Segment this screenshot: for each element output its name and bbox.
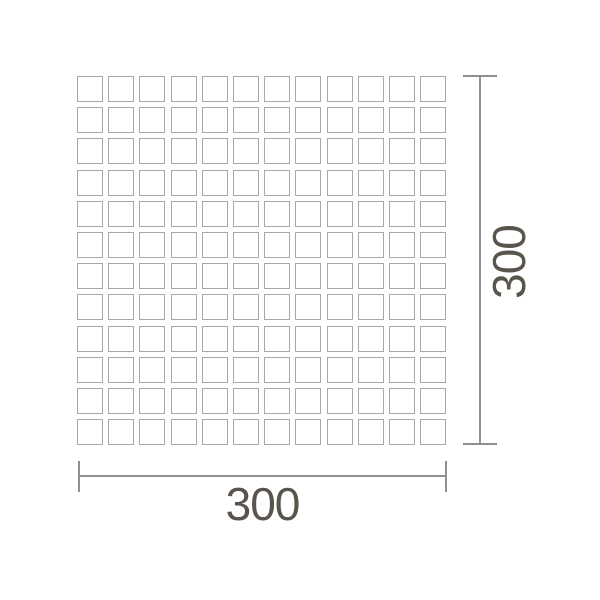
tile: [139, 294, 165, 320]
tile: [264, 294, 290, 320]
tile: [389, 263, 415, 289]
tile: [202, 201, 228, 227]
tile: [358, 201, 384, 227]
tile: [171, 232, 197, 258]
tile: [202, 263, 228, 289]
tile: [327, 294, 353, 320]
tile: [233, 201, 259, 227]
tile: [77, 232, 103, 258]
tile-grid: [77, 76, 446, 445]
tile: [295, 388, 321, 414]
tile: [233, 263, 259, 289]
tile: [77, 107, 103, 133]
tile: [108, 138, 134, 164]
tile: [77, 138, 103, 164]
tile: [358, 107, 384, 133]
tile: [295, 232, 321, 258]
tile: [108, 232, 134, 258]
tile: [77, 326, 103, 352]
tile: [233, 388, 259, 414]
tile: [327, 170, 353, 196]
tile: [389, 201, 415, 227]
tile: [264, 419, 290, 445]
tile: [171, 201, 197, 227]
tile: [420, 388, 446, 414]
height-dimension-tick-top: [463, 75, 497, 76]
tile: [327, 388, 353, 414]
tile: [77, 263, 103, 289]
tile: [108, 294, 134, 320]
tile: [77, 419, 103, 445]
tile: [108, 107, 134, 133]
tile: [139, 201, 165, 227]
tile: [233, 107, 259, 133]
tile: [233, 138, 259, 164]
tile: [202, 388, 228, 414]
tile: [327, 201, 353, 227]
tile: [171, 170, 197, 196]
tile: [202, 232, 228, 258]
tile: [295, 76, 321, 102]
tile: [108, 201, 134, 227]
tile: [358, 357, 384, 383]
tile: [202, 294, 228, 320]
tile: [139, 232, 165, 258]
tile: [202, 138, 228, 164]
tile: [420, 76, 446, 102]
tile: [389, 357, 415, 383]
tile: [389, 138, 415, 164]
tile: [358, 419, 384, 445]
tile-dimension-diagram: 300 300: [0, 0, 600, 600]
tile: [389, 294, 415, 320]
tile: [264, 201, 290, 227]
tile: [77, 388, 103, 414]
tile: [108, 326, 134, 352]
tile: [327, 357, 353, 383]
tile: [108, 357, 134, 383]
tile: [264, 76, 290, 102]
tile: [233, 357, 259, 383]
tile: [389, 388, 415, 414]
tile: [295, 263, 321, 289]
tile: [327, 326, 353, 352]
tile: [420, 201, 446, 227]
tile: [358, 263, 384, 289]
tile: [420, 170, 446, 196]
tile: [139, 170, 165, 196]
tile: [139, 263, 165, 289]
tile: [139, 138, 165, 164]
tile: [389, 232, 415, 258]
height-dimension-line: [479, 76, 480, 444]
tile: [77, 201, 103, 227]
tile: [420, 294, 446, 320]
tile: [202, 357, 228, 383]
tile: [108, 170, 134, 196]
height-dimension-tick-bottom: [463, 443, 497, 444]
tile: [139, 76, 165, 102]
tile: [108, 76, 134, 102]
tile: [420, 263, 446, 289]
tile: [233, 419, 259, 445]
tile: [264, 232, 290, 258]
tile: [389, 326, 415, 352]
tile: [202, 107, 228, 133]
tile: [358, 294, 384, 320]
tile: [171, 388, 197, 414]
height-dimension-label: 300: [482, 225, 536, 299]
tile: [358, 326, 384, 352]
tile: [295, 138, 321, 164]
tile: [420, 107, 446, 133]
tile: [202, 419, 228, 445]
tile: [171, 107, 197, 133]
tile: [295, 201, 321, 227]
tile: [327, 107, 353, 133]
tile: [295, 170, 321, 196]
tile: [171, 326, 197, 352]
tile: [108, 263, 134, 289]
tile: [233, 232, 259, 258]
tile: [420, 232, 446, 258]
tile: [358, 388, 384, 414]
tile: [171, 357, 197, 383]
tile: [295, 419, 321, 445]
tile: [420, 357, 446, 383]
tile: [358, 170, 384, 196]
tile: [420, 138, 446, 164]
tile: [139, 326, 165, 352]
tile: [233, 76, 259, 102]
tile: [171, 419, 197, 445]
tile: [264, 170, 290, 196]
tile: [358, 138, 384, 164]
tile: [139, 107, 165, 133]
tile: [264, 357, 290, 383]
tile: [295, 107, 321, 133]
tile: [77, 357, 103, 383]
tile: [139, 419, 165, 445]
tile: [233, 294, 259, 320]
tile: [202, 326, 228, 352]
tile: [264, 138, 290, 164]
tile: [389, 419, 415, 445]
tile: [77, 294, 103, 320]
tile: [420, 419, 446, 445]
tile: [233, 170, 259, 196]
tile: [264, 388, 290, 414]
tile: [264, 326, 290, 352]
tile: [264, 263, 290, 289]
tile: [171, 294, 197, 320]
tile: [77, 170, 103, 196]
tile: [327, 419, 353, 445]
tile: [389, 107, 415, 133]
tile: [202, 170, 228, 196]
tile: [264, 107, 290, 133]
tile: [295, 326, 321, 352]
tile: [327, 76, 353, 102]
tile: [295, 294, 321, 320]
tile: [327, 232, 353, 258]
tile: [77, 76, 103, 102]
tile: [358, 232, 384, 258]
tile: [171, 138, 197, 164]
tile: [389, 170, 415, 196]
tile: [202, 76, 228, 102]
width-dimension-label: 300: [79, 477, 446, 531]
tile: [108, 388, 134, 414]
tile: [389, 76, 415, 102]
tile: [327, 138, 353, 164]
tile: [108, 419, 134, 445]
tile: [327, 263, 353, 289]
tile: [233, 326, 259, 352]
tile: [171, 263, 197, 289]
tile: [358, 76, 384, 102]
tile: [139, 357, 165, 383]
tile: [295, 357, 321, 383]
tile: [171, 76, 197, 102]
tile: [420, 326, 446, 352]
tile: [139, 388, 165, 414]
